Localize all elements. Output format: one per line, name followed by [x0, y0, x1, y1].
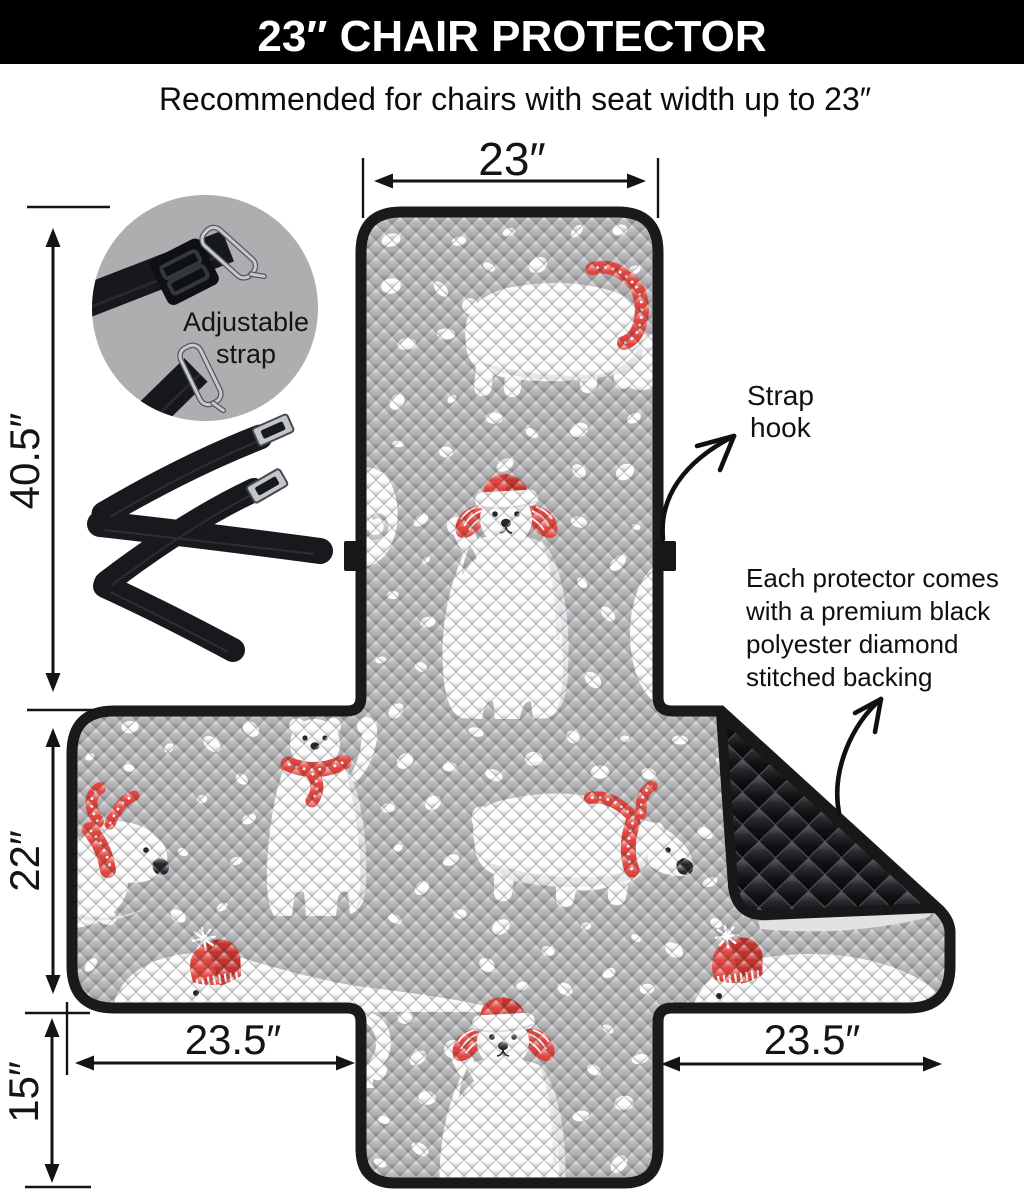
svg-text:with a premium black: with a premium black: [745, 596, 991, 626]
svg-text:Adjustable: Adjustable: [183, 307, 309, 337]
svg-text:23″ CHAIR PROTECTOR: 23″ CHAIR PROTECTOR: [257, 12, 766, 61]
svg-text:40.5″: 40.5″: [1, 413, 48, 510]
svg-text:Each protector comes: Each protector comes: [746, 563, 999, 593]
svg-text:hook: hook: [750, 412, 812, 443]
svg-text:23.5″: 23.5″: [764, 1016, 861, 1063]
svg-text:22″: 22″: [1, 830, 48, 892]
svg-text:strap: strap: [216, 339, 276, 369]
svg-text:polyester diamond: polyester diamond: [746, 629, 958, 659]
svg-text:15″: 15″: [0, 1061, 47, 1123]
svg-text:stitched backing: stitched backing: [746, 662, 932, 692]
svg-text:23.5″: 23.5″: [185, 1016, 282, 1063]
svg-text:Recommended for chairs with se: Recommended for chairs with seat width u…: [159, 81, 871, 117]
svg-text:23″: 23″: [478, 133, 545, 185]
svg-text:Strap: Strap: [747, 380, 814, 411]
